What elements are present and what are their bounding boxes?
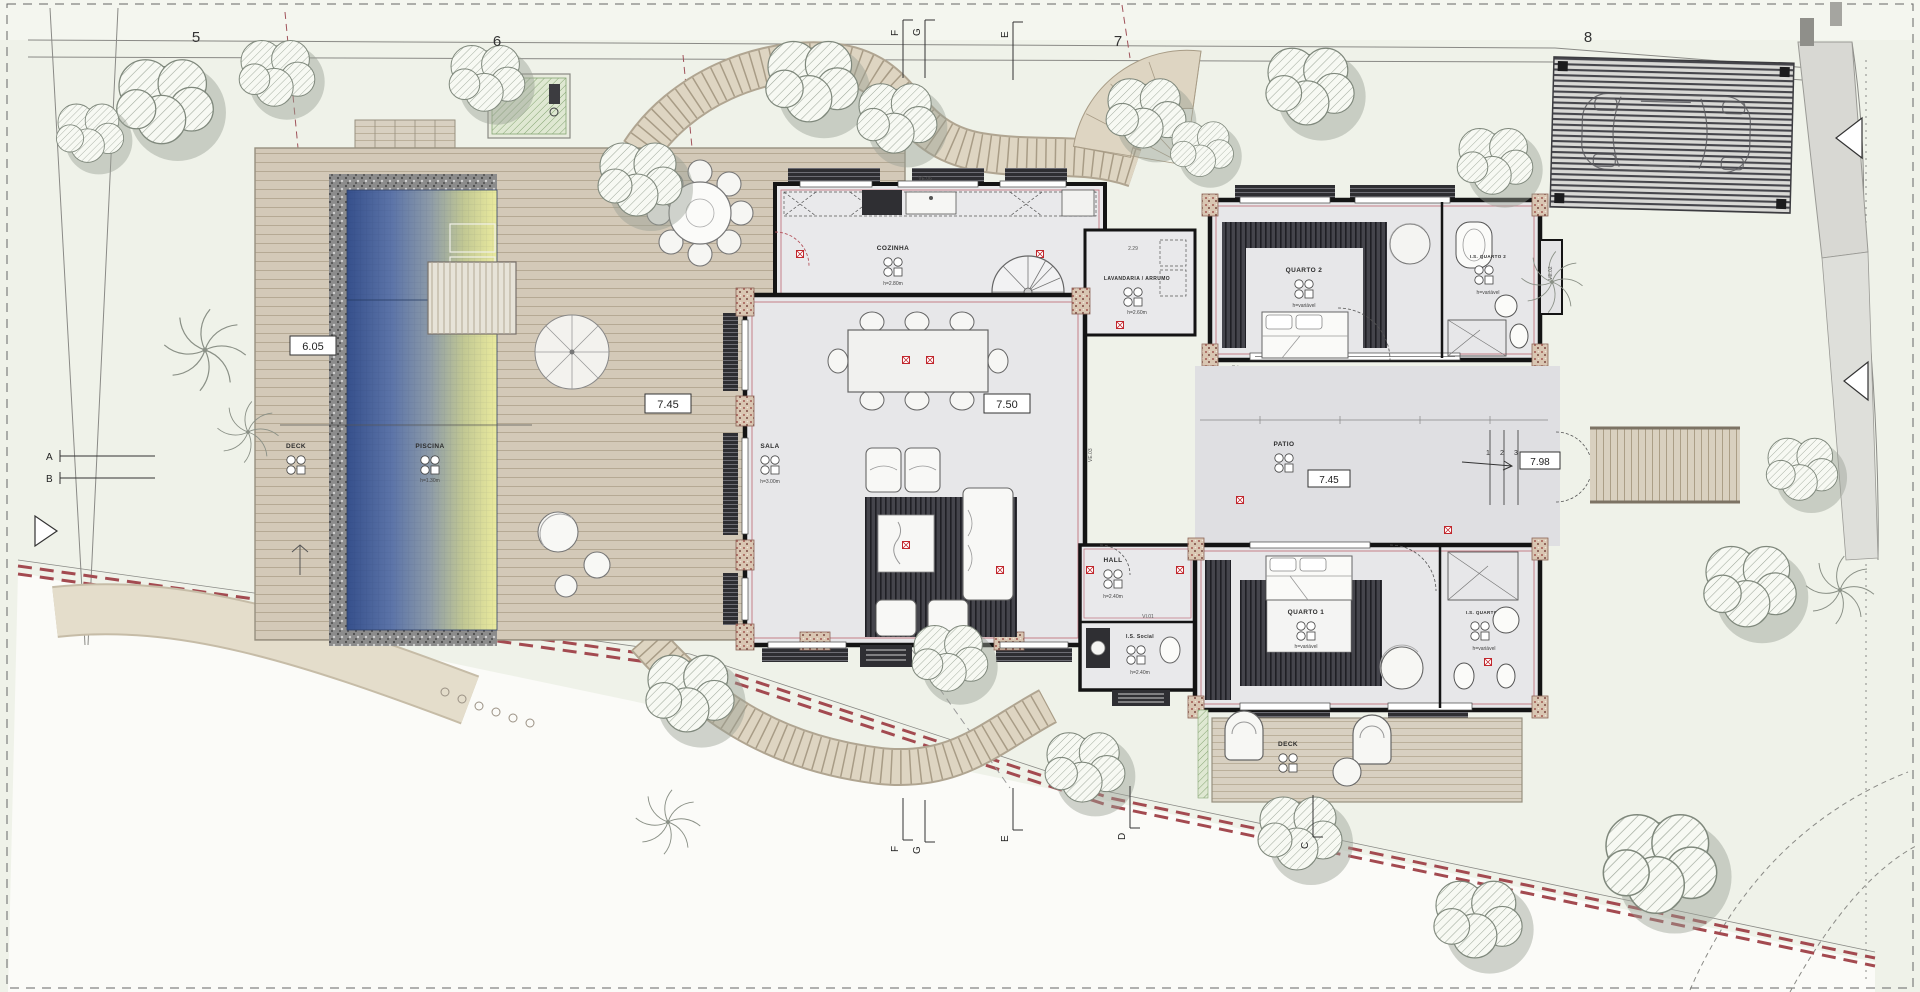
window-vi01: VI.01 [1142, 614, 1154, 620]
marker-bottom-c: C [1300, 842, 1311, 849]
svg-text:7.45: 7.45 [1319, 475, 1339, 486]
dim-box-750: 7.50 [984, 394, 1030, 413]
cozinha-height: h=2.80m [883, 281, 903, 287]
grid-7: 7 [1114, 33, 1122, 50]
marker-top-f: F [890, 30, 901, 36]
step-3: 3 [1514, 450, 1518, 457]
window-ve03: VE.03 [1088, 448, 1094, 462]
label-is-social: I.S. Social [1126, 634, 1154, 640]
patio-court: PATIO 7.45 1 2 3 7.98 [1195, 366, 1592, 546]
deck-pouf [1333, 758, 1361, 786]
carport [1550, 57, 1794, 213]
kitchen-marker-1 [797, 251, 804, 258]
laundry-marker [1117, 322, 1124, 329]
kitchen-marker-2 [1037, 251, 1044, 258]
marker-top-g: G [912, 28, 923, 36]
bed-quarto2 [1262, 312, 1348, 358]
sala-block: SALA h=3.00m 7.50 VE.03 [723, 288, 1094, 667]
grid-6: 6 [493, 33, 501, 50]
label-cozinha: COZINHA [877, 245, 909, 252]
laundry-room: LAVANDARIA / ARRUMO h=2.60m 2.29 [1085, 230, 1195, 335]
label-hall: HALL [1104, 557, 1123, 564]
bed-quarto1 [1266, 556, 1352, 600]
dim-box-745-deck: 7.45 [645, 394, 691, 413]
deck-parasol [535, 315, 609, 389]
step-1: 1 [1486, 450, 1490, 457]
lavandaria-height: h=2.60m [1127, 310, 1147, 316]
marker-left-b: B [46, 474, 53, 485]
label-is-quarto2: I.S. QUARTO 2 [1470, 254, 1506, 259]
svg-text:7.50: 7.50 [996, 399, 1017, 411]
dim-box-745-patio: 7.45 [1308, 470, 1350, 487]
label-deck-pool: DECK [286, 443, 306, 450]
lounge-chair-1 [1225, 711, 1263, 760]
dim-box-798: 7.98 [1520, 452, 1560, 469]
is-quarto2-height: h=variável [1477, 290, 1500, 296]
bottom-deck: DECK [1198, 710, 1522, 802]
piscina-height: h=1.30m [420, 478, 440, 484]
hall-block: HALL h=2.40m VI.01 I.S. Social h=2.40m [1080, 545, 1195, 706]
floor-plan-drawing: DECK PISCINA h=1.30m 6.05 7.45 COZINHA h… [0, 0, 1920, 992]
label-deck-quartos: DECK [1278, 741, 1298, 748]
label-quarto2: QUARTO 2 [1286, 267, 1323, 274]
quarto1-wing: QUARTO 1 h=variável I.S. QUARTO 1 h=vari… [1188, 538, 1548, 735]
svg-text:6.05: 6.05 [302, 341, 323, 353]
label-piscina: PISCINA [415, 443, 444, 450]
step-2: 2 [1500, 450, 1504, 457]
quarto1-height: h=variável [1295, 644, 1318, 650]
dim-box-605: 6.05 [290, 336, 336, 355]
lounge-chair-2 [1353, 715, 1391, 764]
is-quarto1-height: h=variável [1473, 646, 1496, 652]
svg-text:7.45: 7.45 [657, 399, 678, 411]
site-plan-sheet: DECK PISCINA h=1.30m 6.05 7.45 COZINHA h… [0, 0, 1920, 992]
sala-height: h=3.00m [760, 479, 780, 485]
is-social-height: h=2.40m [1130, 670, 1150, 676]
marker-left-a: A [46, 452, 53, 463]
label-sala: SALA [760, 443, 779, 450]
label-lavandaria: LAVANDARIA / ARRUMO [1104, 276, 1170, 282]
marker-bottom-d: D [1117, 833, 1128, 840]
dim-229: 2.29 [1128, 246, 1138, 252]
grid-5: 5 [192, 29, 200, 46]
marker-top-e: E [1000, 31, 1011, 38]
label-quarto1: QUARTO 1 [1288, 609, 1325, 616]
svg-text:7.98: 7.98 [1530, 457, 1550, 468]
window-ve06: VE.06 [918, 176, 932, 182]
bridge-walkway [1590, 428, 1740, 502]
grid-8: 8 [1584, 29, 1592, 46]
label-patio: PATIO [1274, 441, 1295, 448]
marker-bottom-g: G [912, 846, 923, 854]
hall-height: h=2.40m [1103, 594, 1123, 600]
deck-pergola [428, 262, 516, 334]
marker-bottom-f: F [890, 846, 901, 852]
quarto2-height: h=variável [1293, 303, 1316, 309]
marker-bottom-e: E [1000, 835, 1011, 842]
